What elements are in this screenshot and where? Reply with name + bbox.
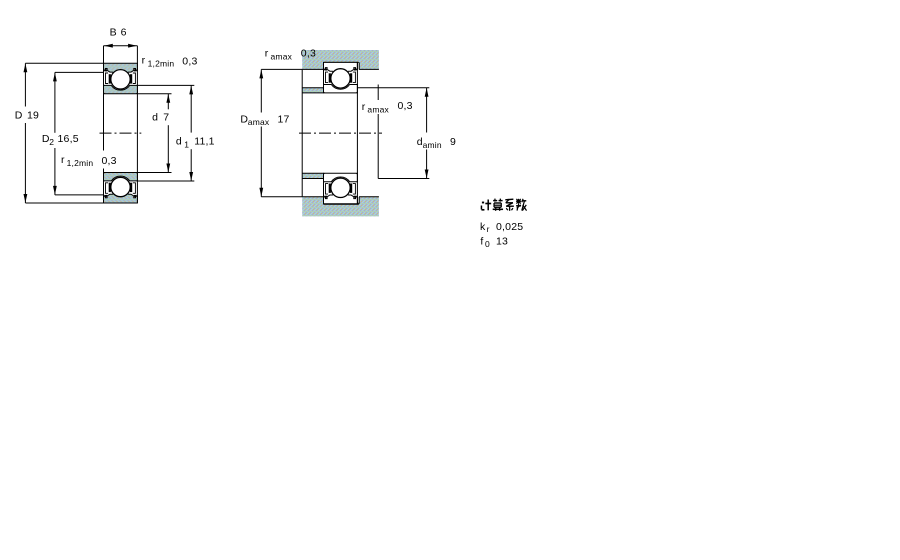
svg-text:1,2min: 1,2min (67, 158, 94, 168)
svg-text:amax: amax (271, 52, 293, 62)
svg-text:17: 17 (278, 113, 290, 125)
svg-text:r: r (142, 54, 146, 66)
svg-text:r: r (362, 101, 366, 113)
svg-text:k: k (480, 221, 486, 233)
svg-text:0: 0 (485, 239, 490, 249)
svg-text:13: 13 (496, 236, 508, 248)
svg-text:9: 9 (450, 136, 456, 148)
svg-text:amin: amin (423, 140, 442, 150)
svg-text:B: B (110, 27, 117, 39)
svg-text:r: r (61, 154, 65, 166)
svg-text:1: 1 (184, 140, 189, 150)
svg-text:19: 19 (27, 109, 39, 121)
svg-text:0,3: 0,3 (102, 155, 117, 167)
svg-text:f: f (480, 236, 483, 248)
svg-text:amax: amax (248, 117, 270, 127)
svg-text:r: r (487, 224, 490, 234)
svg-text:11,1: 11,1 (194, 136, 214, 148)
svg-text:D: D (15, 109, 23, 121)
svg-text:2: 2 (49, 137, 54, 147)
svg-text:0,025: 0,025 (496, 221, 523, 233)
svg-text:0,3: 0,3 (182, 55, 197, 67)
svg-text:d: d (152, 112, 158, 124)
svg-text:1,2min: 1,2min (148, 58, 175, 68)
svg-text:7: 7 (163, 112, 169, 124)
svg-text:amax: amax (367, 105, 389, 115)
svg-text:d: d (176, 136, 182, 148)
svg-text:0,3: 0,3 (398, 100, 413, 112)
svg-text:16,5: 16,5 (58, 133, 79, 145)
svg-text:r: r (265, 48, 269, 60)
svg-text:0,3: 0,3 (301, 47, 316, 59)
svg-text:6: 6 (121, 27, 127, 39)
